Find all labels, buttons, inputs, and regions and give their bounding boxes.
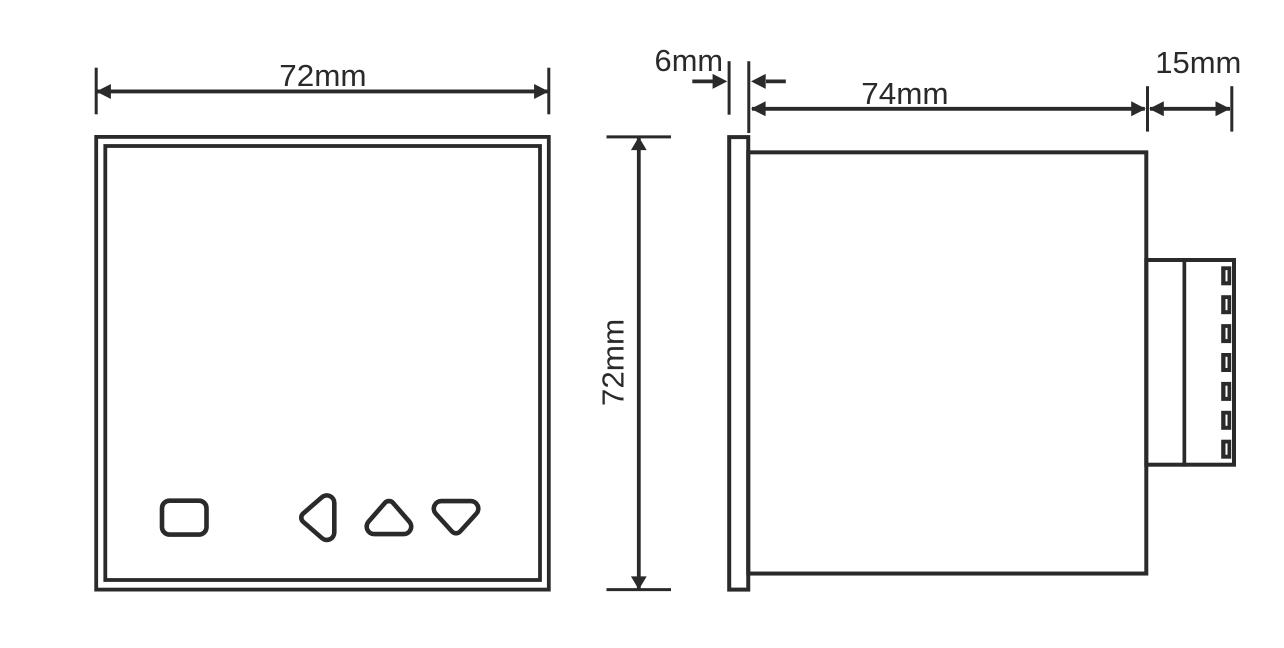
svg-text:72mm: 72mm [595, 319, 630, 406]
svg-text:72mm: 72mm [279, 58, 366, 93]
svg-text:15mm: 15mm [1155, 45, 1241, 80]
svg-text:6mm: 6mm [655, 43, 724, 78]
svg-text:74mm: 74mm [861, 76, 948, 111]
